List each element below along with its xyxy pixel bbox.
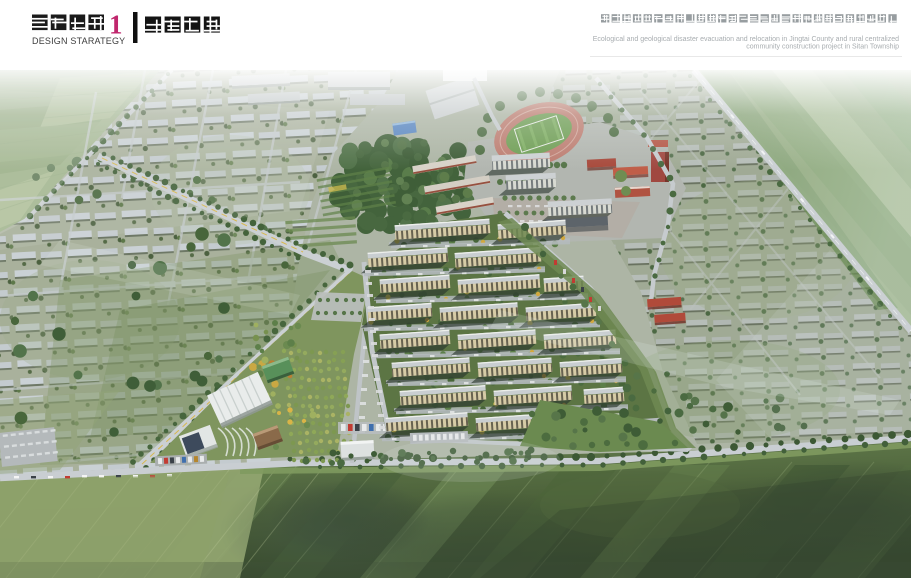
svg-text:1: 1	[109, 10, 123, 40]
svg-text:DESIGN STARATEGY: DESIGN STARATEGY	[32, 36, 125, 46]
svg-text:community construction project: community construction project in Sitan …	[746, 44, 899, 51]
svg-text:Ecological and geological disa: Ecological and geological disaster evacu…	[593, 36, 899, 43]
